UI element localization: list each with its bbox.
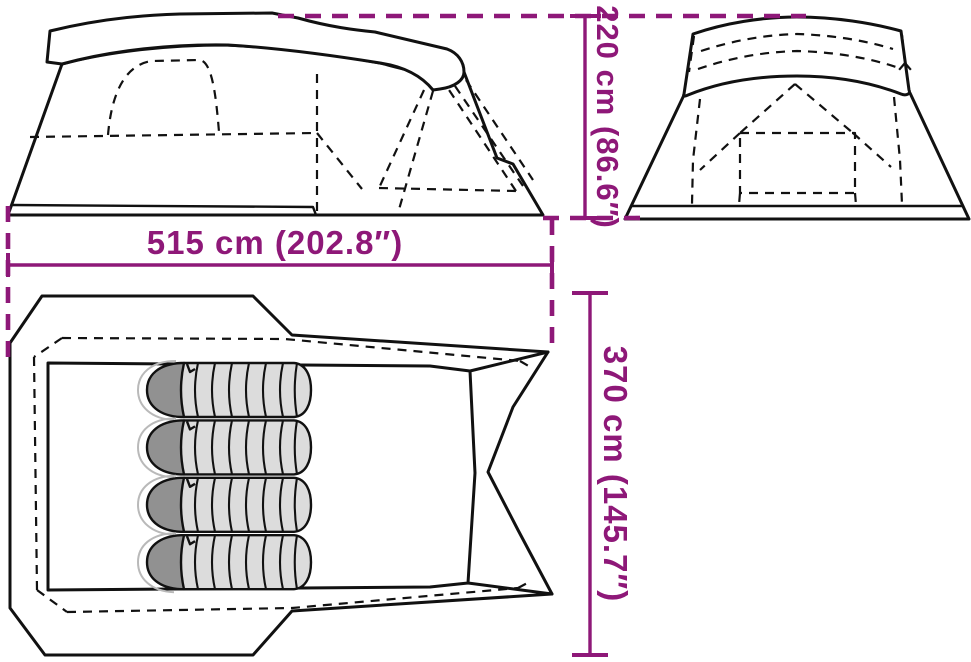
tent-front-view [625, 17, 969, 219]
width-label: 515 cm (202.8″) [147, 224, 403, 261]
sleeping-bag [138, 418, 311, 477]
sleeping-bag [138, 533, 311, 592]
sleeping-bag [138, 361, 311, 420]
depth-label: 370 cm (145.7″) [597, 346, 634, 602]
sleeping-bags [138, 361, 311, 592]
diagram-canvas: 515 cm (202.8″) 220 cm (86.6″) 370 cm (1… [0, 0, 971, 662]
height-label: 220 cm (86.6″) [590, 5, 625, 229]
tent-top-view [10, 296, 552, 655]
dimension-depth: 370 cm (145.7″) [572, 293, 634, 655]
front-body-outline [625, 75, 969, 219]
sleeping-bag [138, 476, 311, 535]
tent-side-view [8, 13, 543, 215]
tent-diagram-svg: 515 cm (202.8″) 220 cm (86.6″) 370 cm (1… [0, 0, 971, 662]
